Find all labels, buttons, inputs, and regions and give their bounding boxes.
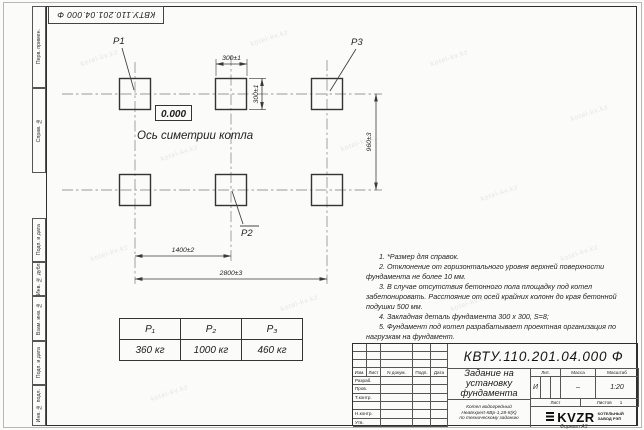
- sheet-label: Лист: [531, 399, 581, 407]
- scale-header: Масштаб: [596, 369, 639, 377]
- revision-row: [353, 352, 448, 360]
- drawing-title-cell: Задание на установку фундамента: [448, 369, 531, 399]
- col-header: Изм.: [353, 368, 367, 377]
- note-line: 2. Отклонение от горизонтального уровня …: [366, 262, 637, 282]
- subtitle-line: по техническому заданию: [459, 416, 518, 422]
- dimension-1400: 1400±2: [135, 247, 231, 256]
- axis-of-symmetry-label: Ось симетрии котла: [137, 130, 253, 142]
- role-label: [353, 402, 381, 410]
- signature-row: Утв.: [353, 419, 448, 427]
- point-label-p1: P1: [113, 36, 125, 47]
- dimension-text: 1400±2: [172, 247, 195, 254]
- dimension-text: 300±1: [253, 84, 260, 103]
- load-table-value: 360 кг: [120, 340, 180, 360]
- dimension-text: 2800±3: [219, 270, 243, 277]
- load-table-header-row: P₁ P₂ P₃: [120, 319, 302, 340]
- signature-row: Н.контр.: [353, 410, 448, 418]
- dimension-text: 960±3: [366, 132, 373, 151]
- note-line: 3. В случае отсутствия бетонного пола пл…: [366, 282, 637, 312]
- load-table-header: P₃: [241, 319, 302, 339]
- note-line: 5. Фундамент под котел разрабатывает про…: [366, 322, 637, 342]
- sheets-value: 1: [620, 400, 623, 405]
- signature-row: Разраб.: [353, 377, 448, 385]
- kvzr-logo-caption: КОТЕЛЬНЫЙ ЗАВОД РЭП: [598, 412, 624, 421]
- title-line: фундамента: [460, 389, 517, 399]
- role-label: Т.контр.: [353, 394, 381, 402]
- scale-value: 1:20: [596, 377, 639, 399]
- load-table-value-row: 360 кг 1000 кг 460 кг: [120, 340, 302, 360]
- role-label: Пров.: [353, 385, 381, 393]
- dimension-text: 300±1: [222, 55, 241, 62]
- col-header: Дата: [431, 368, 448, 377]
- signature-row: [353, 402, 448, 410]
- lit-mass-scale-header-row: Лит. Масса Масштаб: [531, 369, 639, 377]
- level-mark-value: 0.000: [161, 109, 186, 120]
- note-line: 4. Закладная деталь фундамента 300 x 300…: [366, 312, 637, 322]
- sheets-cell: Листов 1: [581, 399, 639, 407]
- col-header: N докум.: [381, 368, 413, 377]
- drawing-sheet: КВТУ.110.201.04.000 Ф Перв. примен. Спра…: [0, 0, 644, 430]
- technical-notes: 1. *Размер для справок. 2. Отклонение от…: [366, 252, 637, 341]
- logo-caption-line: ЗАВОД РЭП: [598, 417, 624, 422]
- signature-row: Пров.: [353, 385, 448, 393]
- dimension-2800: 2800±3: [135, 270, 327, 279]
- kvzr-logo-text: KVZR: [557, 410, 594, 425]
- title-block-right-section: Лит. Масса Масштаб И – 1:20 Лист Листов …: [531, 369, 639, 427]
- note-line: 1. *Размер для справок.: [366, 252, 637, 262]
- document-number: КВТУ.110.201.04.000 Ф: [464, 349, 624, 364]
- lit-mass-scale-value-row: И – 1:20: [531, 377, 639, 399]
- role-label: Утв.: [353, 419, 381, 427]
- dimension-300-width: 300±1: [216, 55, 247, 76]
- center-lines: [62, 55, 382, 284]
- document-number-cell: КВТУ.110.201.04.000 Ф: [448, 344, 639, 369]
- dimension-960: 960±3: [366, 94, 376, 190]
- role-label: Разраб.: [353, 377, 381, 385]
- drawing-subtitle-cell: Котел водогрейный Heatexpert-КВр-1,28-К(…: [448, 399, 531, 427]
- kvzr-logo-icon: [546, 412, 554, 423]
- title-block-left-section: Изм. Лист N докум. Подп. Дата Разраб. Пр…: [353, 344, 448, 427]
- revision-row: [353, 344, 448, 352]
- point-label-p2: P2: [241, 228, 253, 239]
- col-header: Подп.: [413, 368, 431, 377]
- sheets-label: Листов: [597, 400, 612, 405]
- format-label: Формат А3: [560, 424, 587, 430]
- lit-header: Лит.: [531, 369, 561, 377]
- load-table-value: 1000 кг: [180, 340, 241, 360]
- lit-value: И: [531, 377, 541, 399]
- signature-row: Т.контр.: [353, 394, 448, 402]
- sheet-row: Лист Листов 1: [531, 399, 639, 407]
- title-block: Изм. Лист N докум. Подп. Дата Разраб. Пр…: [352, 343, 638, 426]
- load-table-header: P₁: [120, 319, 180, 339]
- level-mark: 0.000: [156, 106, 192, 121]
- mass-header: Масса: [561, 369, 596, 377]
- load-table-header: P₂: [180, 319, 241, 339]
- col-header: Лист: [367, 368, 381, 377]
- revision-row: [353, 360, 448, 368]
- load-table: P₁ P₂ P₃ 360 кг 1000 кг 460 кг: [119, 318, 303, 361]
- point-label-p3: P3: [351, 37, 363, 48]
- mass-value: –: [561, 377, 596, 399]
- load-table-value: 460 кг: [241, 340, 302, 360]
- role-label: Н.контр.: [353, 410, 381, 418]
- revision-header-row: Изм. Лист N докум. Подп. Дата: [353, 368, 448, 377]
